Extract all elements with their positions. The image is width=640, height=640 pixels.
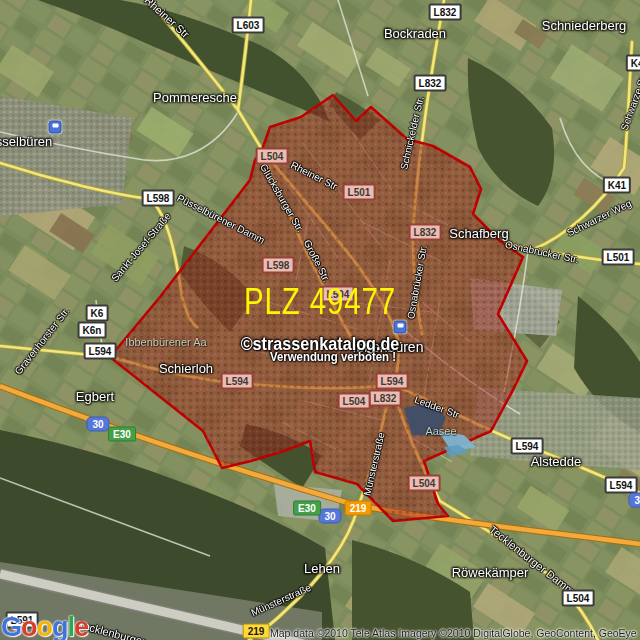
- route-shield-30: 30: [628, 493, 640, 508]
- route-shield-L832: L832: [414, 75, 447, 92]
- street-label: Osnabrücker Str.: [405, 244, 429, 320]
- route-shield-K41: K41: [626, 55, 640, 72]
- route-shield-L832: L832: [369, 390, 402, 407]
- street-label: Münsterstraße: [249, 582, 312, 618]
- route-shield-L832: L832: [409, 224, 442, 241]
- google-logo-letter: o: [21, 612, 37, 640]
- route-shield-L594: L594: [84, 343, 117, 360]
- route-shield-L832: L832: [429, 4, 462, 21]
- watermark-warning: Verwendung verboten !: [270, 350, 396, 364]
- street-label: Osnabrücker Str.: [504, 239, 580, 265]
- street-label: Münsterstraße: [361, 431, 386, 496]
- route-shield-L501: L501: [343, 184, 376, 201]
- route-shield-L603: L603: [232, 17, 265, 34]
- google-logo-letter: o: [37, 612, 53, 640]
- street-label: Große Str.: [302, 238, 333, 284]
- route-shield-L594: L594: [511, 438, 544, 455]
- street-label: Rheiner Str: [142, 0, 191, 40]
- place-label: Ibbenbürener Aa: [125, 336, 206, 348]
- place-label: Lehen: [304, 561, 340, 576]
- route-shield-L598: L598: [142, 190, 175, 207]
- street-label: Püsselbürener Damm: [175, 192, 266, 246]
- street-label: Schwarze Str: [619, 72, 640, 132]
- street-label: Rheiner Str.: [289, 159, 341, 193]
- plz-code-label: PLZ 49477: [244, 281, 396, 323]
- map-attribution: Map data ©2010 Tele Atlas Imagery ©2010 …: [270, 627, 637, 639]
- route-shield-219: 219: [345, 501, 372, 516]
- street-label: Sankt-Josef-Straße: [109, 210, 173, 283]
- place-label: Aasee: [425, 425, 456, 437]
- place-label: Pommeresche: [153, 90, 237, 105]
- route-shield-E30: E30: [108, 427, 136, 442]
- route-shield-L504: L504: [562, 590, 595, 607]
- google-logo-letter: e: [74, 612, 88, 640]
- street-label: Schwarzer Weg: [565, 198, 633, 239]
- street-label: Gravenhorster Str.: [13, 305, 72, 376]
- route-shield-L594: L594: [376, 373, 409, 390]
- place-label: Egbert: [76, 389, 114, 404]
- street-label: Tecklenburger Damm: [487, 523, 577, 597]
- place-label: Alstedde: [531, 454, 582, 469]
- route-shield-K6n: K6n: [78, 322, 107, 339]
- place-label: sselbüren: [0, 134, 52, 149]
- route-shield-L594: L594: [221, 373, 254, 390]
- google-logo: Google: [1, 612, 88, 640]
- route-shield-E30: E30: [293, 501, 321, 516]
- street-label: Schnickelder Str.: [398, 95, 426, 171]
- google-logo-letter: g: [52, 612, 68, 640]
- route-shield-K41: K41: [603, 177, 631, 194]
- route-shield-219: 219: [243, 624, 270, 639]
- place-label: Bockraden: [384, 26, 446, 41]
- route-shield-L504: L504: [408, 475, 441, 492]
- route-shield-30: 30: [86, 417, 109, 432]
- route-shield-L598: L598: [262, 257, 295, 274]
- place-label: Schafberg: [449, 226, 508, 241]
- route-shield-30: 30: [318, 509, 341, 524]
- route-shield-L504: L504: [256, 148, 289, 165]
- route-shield-K6: K6: [86, 305, 109, 322]
- place-label: Schierloh: [159, 361, 213, 376]
- place-label: Röwekämper: [452, 565, 529, 580]
- route-shield-L594: L594: [605, 477, 638, 494]
- route-shield-L501: L501: [602, 249, 635, 266]
- google-logo-letter: G: [1, 612, 21, 640]
- street-label: Ledder Str: [413, 394, 461, 420]
- place-label: Schniederberg: [542, 18, 627, 33]
- map-canvas[interactable]: Rheiner StrRheiner Str.Glücksburger Str.…: [0, 0, 640, 640]
- route-shield-L504: L504: [338, 393, 371, 410]
- attribution-text: Map data ©2010 Tele Atlas Imagery ©2010 …: [270, 627, 637, 639]
- station-icon: [49, 121, 62, 134]
